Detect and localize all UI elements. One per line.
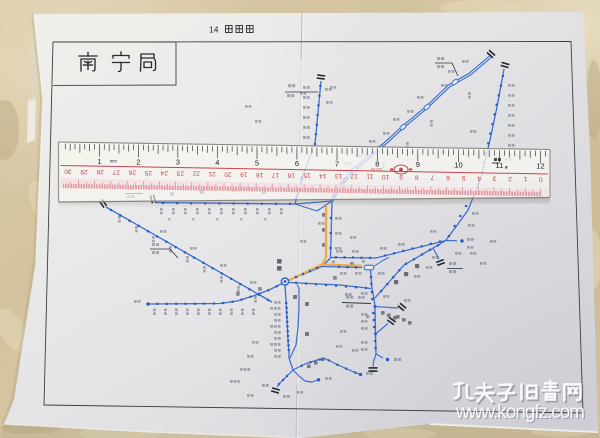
svg-text:30: 30 — [64, 168, 72, 175]
svg-text:0: 0 — [539, 175, 543, 182]
svg-text:6: 6 — [295, 159, 299, 168]
svg-text:21: 21 — [208, 170, 216, 177]
svg-text:5: 5 — [461, 174, 465, 181]
svg-text:3: 3 — [492, 175, 496, 182]
svg-text:12: 12 — [536, 161, 544, 170]
svg-text:14: 14 — [319, 172, 327, 179]
svg-text:17: 17 — [272, 171, 280, 178]
svg-text:2: 2 — [136, 157, 140, 166]
svg-text:4: 4 — [215, 158, 219, 167]
svg-text:3: 3 — [176, 158, 180, 167]
svg-text:2: 2 — [508, 175, 512, 182]
svg-text:19: 19 — [240, 171, 248, 178]
svg-text:7: 7 — [335, 159, 339, 168]
svg-text:28: 28 — [96, 168, 104, 175]
svg-text:22: 22 — [192, 170, 200, 177]
svg-text:10: 10 — [454, 161, 462, 170]
svg-text:27: 27 — [112, 168, 120, 175]
svg-text:18: 18 — [256, 171, 264, 178]
svg-text:11: 11 — [366, 173, 373, 180]
svg-text:www.kongfz.com: www.kongfz.com — [455, 402, 585, 423]
svg-text:14: 14 — [209, 25, 219, 35]
svg-text:23: 23 — [176, 170, 184, 177]
svg-text:20: 20 — [224, 170, 232, 177]
svg-text:25: 25 — [144, 169, 152, 176]
svg-text:mm: mm — [110, 159, 117, 164]
svg-text:1: 1 — [523, 175, 527, 182]
svg-text:NO.30: NO.30 — [371, 167, 382, 171]
svg-text:6: 6 — [446, 174, 450, 181]
svg-text:8: 8 — [415, 173, 419, 180]
svg-text:26: 26 — [128, 169, 136, 176]
svg-text:29: 29 — [80, 168, 88, 175]
svg-text:11: 11 — [496, 161, 504, 170]
svg-text:10: 10 — [382, 173, 390, 180]
svg-text:5: 5 — [255, 159, 259, 168]
svg-text:13: 13 — [335, 172, 343, 179]
svg-text:9: 9 — [416, 160, 420, 169]
svg-text:1: 1 — [97, 157, 101, 166]
svg-text:7: 7 — [430, 174, 434, 181]
svg-text:12: 12 — [350, 172, 358, 179]
svg-text:16: 16 — [287, 171, 295, 178]
svg-text:4: 4 — [477, 174, 481, 181]
svg-text:15: 15 — [303, 172, 311, 179]
svg-text:24: 24 — [160, 169, 168, 176]
